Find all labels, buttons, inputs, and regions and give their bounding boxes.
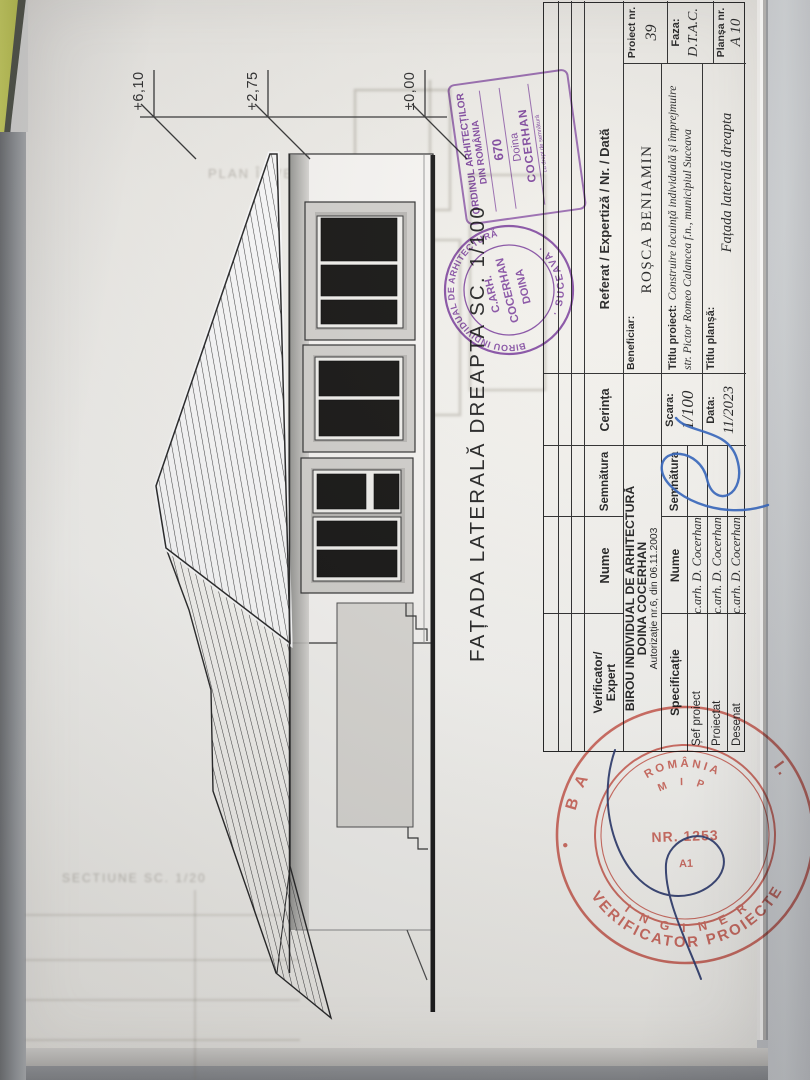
signature-blue bbox=[662, 418, 768, 510]
rotated-landscape-sheet: PLAN ÎNVELITOARE SC SECTIUNE SC. 1/20 bbox=[0, 0, 810, 1080]
signatures bbox=[0, 0, 810, 1080]
photographed-drawing-sheet: PLAN ÎNVELITOARE SC SECTIUNE SC. 1/20 bbox=[0, 0, 810, 1080]
signature-navy bbox=[608, 750, 724, 979]
